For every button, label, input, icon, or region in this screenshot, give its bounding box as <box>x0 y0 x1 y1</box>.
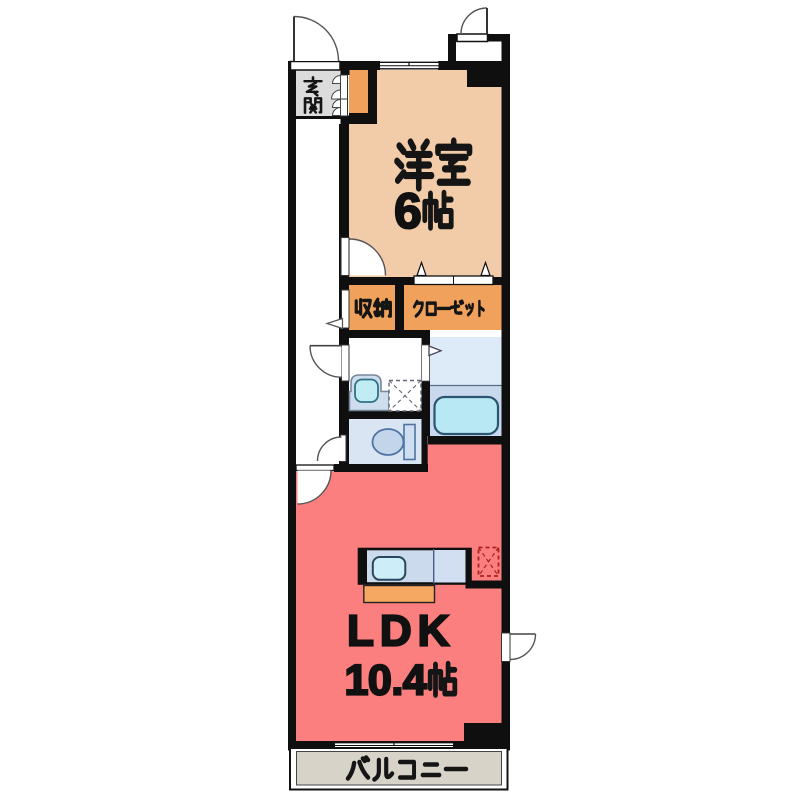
svg-text:6: 6 <box>394 183 422 239</box>
svg-text:LDK: LDK <box>347 607 455 656</box>
svg-text:10.4: 10.4 <box>345 657 427 705</box>
